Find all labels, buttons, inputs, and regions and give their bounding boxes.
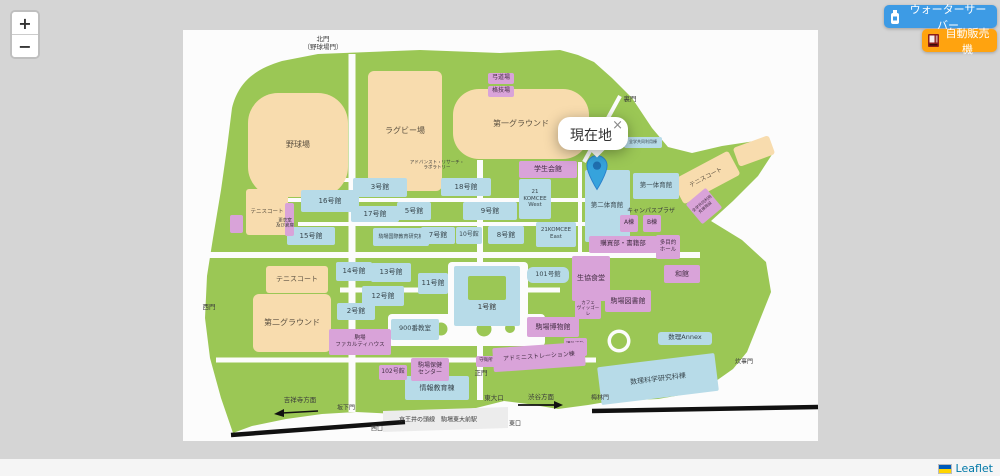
- map-label: 西口: [371, 425, 383, 432]
- map-building: 14号館: [336, 262, 372, 281]
- map-building: 15号館: [287, 227, 335, 245]
- map-facility: 和館: [664, 265, 700, 283]
- map-facility: 購買部・書籍部: [589, 236, 657, 253]
- map-zoom-control: + −: [10, 10, 40, 59]
- map-facility: 格技場: [488, 86, 514, 97]
- map-label: 渋谷方面: [528, 394, 554, 402]
- vending-machine-button[interactable]: 自動販売機: [922, 29, 997, 52]
- map-facility: A棟: [620, 215, 638, 232]
- water-bottle-icon: [890, 10, 900, 24]
- map-label: 東大口: [484, 395, 504, 403]
- map-label: 京王井の頭線 駒場東大前駅: [399, 416, 477, 423]
- map-app: 野球場ラグビー場第一グラウンドテニスコートテニスコート第二グラウンドテニスコート…: [0, 0, 1000, 476]
- map-label: キャンパスプラザ: [627, 207, 675, 214]
- vending-machine-icon: [928, 34, 939, 47]
- map-field: 第二グラウンド: [253, 294, 331, 352]
- popup-title: 現在地: [570, 125, 612, 145]
- location-marker-icon[interactable]: [586, 154, 608, 192]
- map-building: 2号館: [337, 303, 375, 320]
- map-building: 9号館: [463, 202, 517, 220]
- leaflet-attribution-link[interactable]: Leaflet: [956, 462, 993, 475]
- attribution-bar: Leaflet: [0, 459, 1000, 476]
- map-building: 21 KOMCEE West: [519, 179, 551, 219]
- map-building: 13号館: [371, 263, 411, 282]
- map-label: 1号館: [478, 303, 496, 311]
- map-courtyard: [468, 276, 506, 300]
- vending-machine-label: 自動販売機: [944, 25, 991, 57]
- zoom-out-button[interactable]: −: [12, 34, 38, 57]
- map-building: 7号館: [421, 227, 455, 244]
- map-building: 数理Annex: [658, 332, 712, 345]
- map-tiny-label: アドバンスト・リサーチ・ ラボラトリー: [410, 161, 464, 172]
- map-building: 5号館: [397, 202, 431, 220]
- map-label: 北門 （野球場門）: [304, 36, 343, 52]
- attribution: Leaflet: [938, 462, 993, 475]
- map-label: 坂下門: [337, 404, 355, 411]
- map-building: 21KOMCEE East: [536, 222, 576, 247]
- map-label: 炊事門: [735, 358, 753, 365]
- map-label: 裏門: [624, 96, 637, 104]
- map-facility: 駒場保健 センター: [411, 358, 449, 381]
- zoom-in-button[interactable]: +: [12, 12, 38, 34]
- map-facility: カフェ ヴィッゴーレ: [575, 300, 601, 319]
- map-facility: B棟: [643, 215, 661, 232]
- map-facility: 多目的 ホール: [656, 235, 680, 259]
- map-field: 野球場: [248, 93, 348, 197]
- map-label: 正門: [475, 370, 488, 378]
- map-field: テニスコート: [266, 266, 328, 293]
- map-field: ラグビー場: [368, 71, 442, 191]
- map-building: 11号館: [418, 273, 448, 294]
- map-label: 吉祥寺方面: [284, 397, 317, 405]
- map-building: 3号館: [353, 178, 407, 197]
- map-facility: 弓道場: [488, 73, 514, 84]
- map-facility: 駒場 ファカルティハウス: [329, 329, 391, 355]
- popup-close-button[interactable]: ×: [612, 118, 623, 133]
- map-facility: 学生会館: [519, 161, 577, 178]
- map-building: 第一体育館: [633, 173, 679, 199]
- current-location-popup: 現在地 ×: [558, 117, 628, 150]
- map-tiny-label: 更衣室 及び倉庫: [276, 219, 294, 230]
- map-facility: 102号館: [379, 365, 407, 380]
- map-building: 900番教室: [391, 319, 439, 340]
- map-building: 17号館: [351, 206, 399, 222]
- map-building: 全学共同利用棟: [624, 137, 662, 148]
- map-facility: 守衛所: [476, 356, 496, 367]
- map-label: 梅林門: [591, 394, 609, 401]
- map-facility: [230, 215, 243, 233]
- map-building: 10号館: [456, 227, 482, 244]
- ukraine-flag-icon: [938, 464, 952, 474]
- map-facility: 駒場博物館: [527, 317, 579, 337]
- map-building: 18号館: [441, 178, 491, 196]
- map-building: 101号館: [527, 267, 569, 283]
- map-facility: 駒場図書館: [605, 290, 651, 312]
- map-label: 西門: [203, 304, 216, 312]
- map-label: 東口: [509, 420, 521, 427]
- map-building: 8号館: [488, 226, 524, 244]
